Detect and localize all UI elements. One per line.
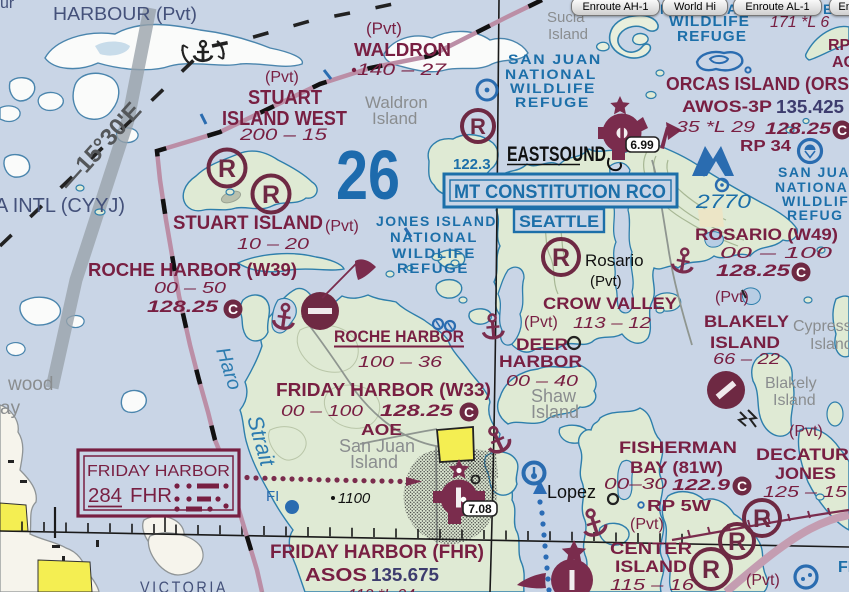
svg-text:00–30: 00–30 (604, 476, 667, 493)
svg-text:Rosario: Rosario (585, 251, 644, 270)
svg-text:FR: FR (838, 559, 849, 576)
svg-text:(Pvt): (Pvt) (715, 289, 749, 306)
svg-text:R: R (552, 244, 570, 272)
svg-text:wood: wood (7, 374, 53, 395)
svg-text:AWOS-3P: AWOS-3P (682, 97, 772, 116)
svg-text:Island: Island (372, 109, 417, 128)
svg-text:Island: Island (810, 336, 849, 353)
svg-text:JONES ISLAND: JONES ISLAND (376, 213, 497, 229)
svg-text:ISLAND: ISLAND (710, 333, 780, 352)
svg-text:ASOS: ASOS (305, 565, 367, 585)
svg-text:7.08: 7.08 (468, 502, 492, 516)
svg-text:WALDRON: WALDRON (354, 40, 451, 60)
svg-text:FRIDAY HARBOR: FRIDAY HARBOR (87, 463, 230, 480)
svg-text:Island: Island (548, 26, 588, 43)
svg-text:C: C (464, 404, 474, 420)
svg-text:FHR: FHR (130, 485, 172, 507)
svg-text:26: 26 (336, 136, 400, 214)
svg-text:128.25: 128.25 (380, 401, 454, 420)
svg-text:SEATTLE: SEATTLE (519, 212, 599, 231)
svg-text:1100: 1100 (338, 490, 371, 507)
svg-text:EASTSOUND: EASTSOUND (507, 143, 606, 166)
svg-text:SAN JUA: SAN JUA (778, 164, 849, 180)
svg-text:AC: AC (832, 54, 849, 71)
svg-text:C: C (837, 122, 847, 138)
svg-text:STUART ISLAND: STUART ISLAND (173, 213, 323, 234)
svg-text:6.99: 6.99 (630, 138, 654, 152)
svg-text:Island: Island (531, 402, 579, 422)
svg-text:122.3: 122.3 (453, 156, 491, 173)
svg-text:HARBOR: HARBOR (499, 352, 582, 371)
svg-text:284: 284 (88, 485, 122, 507)
svg-text:112 *L 34: 112 *L 34 (348, 587, 415, 592)
svg-text:R: R (702, 556, 720, 584)
svg-text:128.25: 128.25 (147, 297, 219, 316)
svg-text:00 – 50: 00 – 50 (154, 280, 226, 297)
svg-text:REFUGE: REFUGE (677, 28, 747, 45)
svg-text:35 *L 29: 35 *L 29 (676, 119, 755, 136)
svg-text:ROCHE HARBOR (W39): ROCHE HARBOR (W39) (88, 260, 297, 280)
svg-text:Island: Island (350, 452, 398, 472)
svg-text:C: C (796, 264, 806, 280)
svg-text:RP: RP (828, 37, 849, 54)
svg-text:R: R (728, 528, 746, 556)
svg-text:STUART: STUART (248, 87, 322, 109)
svg-text:ROSARIO (W49): ROSARIO (W49) (695, 225, 838, 244)
svg-text:(Pvt): (Pvt) (524, 314, 558, 331)
svg-text:REFUGE: REFUGE (515, 94, 590, 110)
svg-text:140 – 27: 140 – 27 (357, 60, 447, 79)
svg-text:CROW VALLEY: CROW VALLEY (543, 294, 678, 313)
svg-text:BLAKELY: BLAKELY (704, 312, 790, 331)
svg-text:C: C (228, 301, 238, 317)
svg-text:2770: 2770 (695, 192, 752, 213)
svg-text:(Pvt): (Pvt) (325, 218, 359, 235)
svg-text:A INTL (CYYJ): A INTL (CYYJ) (0, 195, 125, 217)
svg-text:10 – 20: 10 – 20 (237, 236, 309, 253)
svg-text:ur: ur (0, 0, 15, 12)
svg-text:ay: ay (0, 398, 21, 419)
svg-text:NATIONAL: NATIONAL (390, 229, 478, 245)
svg-text:R: R (753, 505, 771, 533)
svg-text:128.25: 128.25 (716, 261, 791, 280)
svg-text:R: R (470, 114, 486, 139)
svg-text:RP 34: RP 34 (740, 138, 791, 155)
svg-text:FRIDAY HARBOR (W33): FRIDAY HARBOR (W33) (276, 380, 491, 400)
svg-text:135.675: 135.675 (371, 565, 439, 585)
svg-text:BAY (81W): BAY (81W) (630, 458, 723, 477)
svg-text:113 – 12: 113 – 12 (573, 315, 651, 332)
svg-text:FISHERMAN: FISHERMAN (619, 438, 737, 457)
svg-text:(Pvt): (Pvt) (265, 69, 299, 86)
svg-text:Island: Island (773, 392, 816, 409)
svg-text:R: R (262, 181, 280, 209)
svg-text:115 – 16: 115 – 16 (610, 577, 694, 592)
svg-text:REFUG: REFUG (787, 207, 844, 223)
svg-text:125 – 15: 125 – 15 (763, 484, 847, 501)
svg-text:Lopez: Lopez (547, 482, 596, 502)
svg-text:FI: FI (266, 488, 279, 505)
svg-text:WILDLIFE: WILDLIFE (392, 245, 476, 261)
svg-text:REFUGE: REFUGE (397, 260, 469, 276)
svg-text:(Pvt): (Pvt) (366, 19, 402, 38)
svg-text:Blakely: Blakely (765, 375, 817, 392)
svg-text:66 – 22: 66 – 22 (713, 351, 780, 368)
svg-text:(Pvt): (Pvt) (789, 423, 823, 440)
svg-text:(Pvt): (Pvt) (746, 572, 780, 589)
svg-text:R: R (218, 155, 236, 183)
svg-text:135.425: 135.425 (776, 97, 844, 117)
svg-text:Cypress: Cypress (793, 318, 849, 335)
svg-text:JONES: JONES (775, 464, 836, 483)
svg-text:00 – 100: 00 – 100 (720, 245, 832, 262)
svg-text:128.25: 128.25 (765, 119, 832, 138)
svg-text:100 – 36: 100 – 36 (358, 354, 442, 371)
svg-text:122.9: 122.9 (672, 477, 730, 494)
svg-text:VICTORIA: VICTORIA (140, 578, 228, 592)
svg-text:CENTER: CENTER (610, 539, 692, 558)
svg-text:SAN JUAN: SAN JUAN (508, 51, 602, 67)
svg-text:MT CONSTITUTION RCO: MT CONSTITUTION RCO (454, 182, 666, 203)
svg-text:(Pvt): (Pvt) (590, 273, 622, 290)
svg-text:HARBOUR (Pvt): HARBOUR (Pvt) (53, 4, 197, 24)
svg-text:(Pvt): (Pvt) (630, 516, 664, 533)
svg-text:C: C (737, 478, 747, 494)
svg-text:ORCAS ISLAND (ORS: ORCAS ISLAND (ORS (666, 74, 849, 94)
svg-text:ISLAND: ISLAND (615, 557, 687, 576)
svg-text:RP 5W: RP 5W (647, 498, 712, 515)
svg-text:FRIDAY HARBOR (FHR): FRIDAY HARBOR (FHR) (270, 542, 484, 563)
svg-text:DECATUR: DECATUR (756, 445, 849, 464)
svg-text:00 – 100: 00 – 100 (281, 403, 363, 420)
svg-text:200 – 15: 200 – 15 (239, 125, 328, 144)
svg-text:ROCHE HARBOR: ROCHE HARBOR (334, 327, 464, 346)
